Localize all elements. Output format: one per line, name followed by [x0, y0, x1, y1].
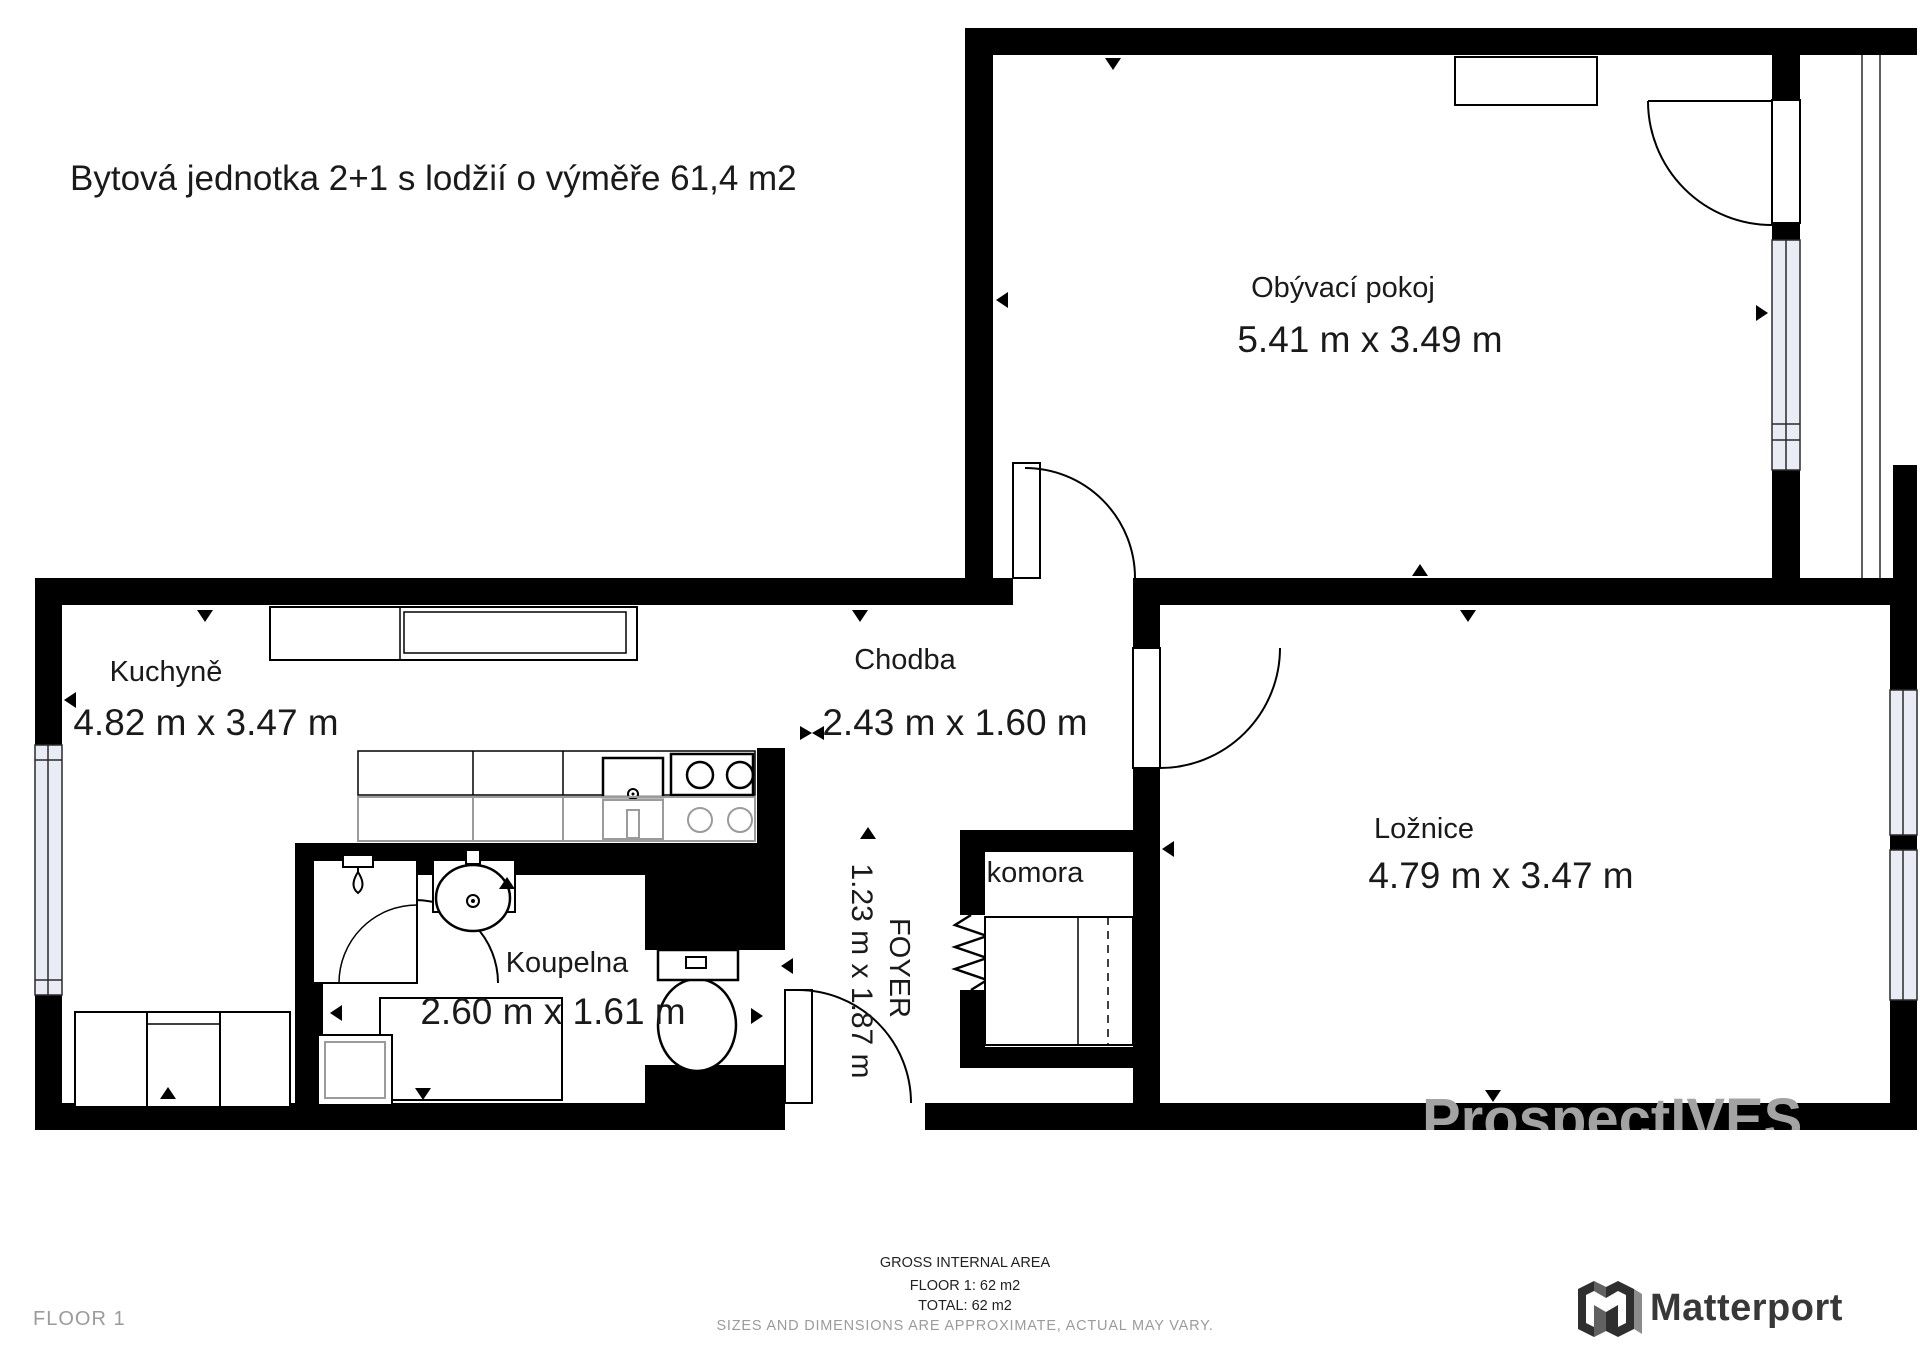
bathroom-sink	[433, 850, 515, 931]
kitchen-counter	[358, 751, 755, 841]
wall-segment	[1890, 835, 1917, 850]
wall-segment	[1133, 768, 1160, 1130]
matterport-icon	[1578, 1281, 1642, 1337]
room-dims-bedroom: 4.79 m x 3.47 m	[1368, 855, 1633, 896]
kitchen-dresser	[75, 1012, 290, 1107]
kitchen-counter-lower	[358, 797, 755, 841]
floor-label: FLOOR 1	[33, 1308, 126, 1330]
wall-segment	[35, 578, 62, 745]
loggia-railing	[1862, 55, 1880, 578]
room-label-bathroom: Koupelna	[506, 947, 629, 979]
wall-segment	[1890, 605, 1917, 690]
kitchen-upper-counter	[270, 607, 637, 660]
floor-plan-page: ProspectIVES Bytová jednotka 2+1 s lodži…	[0, 0, 1920, 1358]
shower-head-icon	[343, 855, 373, 867]
room-dims-bathroom: 2.60 m x 1.61 m	[420, 991, 685, 1032]
room-label-storage: komora	[987, 857, 1085, 889]
wall-segment	[757, 748, 785, 843]
floor-plan: ProspectIVES Bytová jednotka 2+1 s lodži…	[0, 0, 1920, 1358]
room-dims-foyer: 1.23 m x 1.87 m	[845, 863, 878, 1078]
wall-segment	[1133, 578, 1160, 648]
room-dims-hall: 2.43 m x 1.60 m	[822, 702, 1087, 743]
washing-machine	[318, 1035, 392, 1105]
plan-title: Bytová jednotka 2+1 s lodžií o výměře 61…	[70, 159, 797, 198]
disclaimer-text: SIZES AND DIMENSIONS ARE APPROXIMATE, AC…	[716, 1318, 1213, 1334]
wall-segment	[1772, 28, 1800, 100]
gross-internal-area-heading: GROSS INTERNAL AREA	[880, 1255, 1051, 1271]
wall-segment	[35, 578, 1013, 605]
total-area-value: TOTAL: 62 m2	[918, 1298, 1012, 1314]
wall-segment	[645, 1065, 785, 1103]
storage-wardrobe	[985, 917, 1133, 1045]
balcony-door	[1648, 100, 1800, 225]
wall-segment	[1890, 1000, 1917, 1130]
bedroom-door	[1133, 648, 1280, 768]
room-label-kitchen: Kuchyně	[110, 656, 223, 688]
room-label-living: Obývací pokoj	[1251, 272, 1435, 304]
floor-area-value: FLOOR 1: 62 m2	[910, 1278, 1020, 1294]
matterport-wordmark: Matterport	[1650, 1287, 1843, 1329]
room-label-foyer: FOYER	[883, 918, 915, 1018]
window-bedroom-right-upper	[1890, 690, 1917, 835]
wall-segment	[960, 852, 985, 915]
shower	[313, 855, 417, 983]
wall-segment	[1135, 578, 1917, 605]
tv-cabinet	[1455, 57, 1597, 105]
footer: GROSS INTERNAL AREA FLOOR 1: 62 m2 TOTAL…	[33, 1255, 1214, 1334]
brand-logo: Matterport	[1578, 1281, 1843, 1337]
stove	[671, 754, 753, 795]
room-dims-living: 5.41 m x 3.49 m	[1237, 319, 1502, 360]
wall-segment	[645, 843, 785, 950]
room-dims-kitchen: 4.82 m x 3.47 m	[73, 702, 338, 743]
room-label-hall: Chodba	[854, 644, 956, 676]
wall-segment	[960, 830, 1160, 852]
living-room-door	[1013, 463, 1135, 578]
wall-segment	[960, 1047, 1160, 1068]
watermark: ProspectIVES	[1422, 1087, 1802, 1152]
wall-segment	[1772, 223, 1800, 240]
room-label-bedroom: Ložnice	[1374, 813, 1474, 845]
window-kitchen-left	[35, 745, 62, 995]
window-bedroom-right-lower	[1890, 850, 1917, 1000]
window-living-right	[1772, 240, 1800, 470]
wall-segment	[965, 28, 993, 605]
storage-folding-door	[955, 915, 987, 990]
